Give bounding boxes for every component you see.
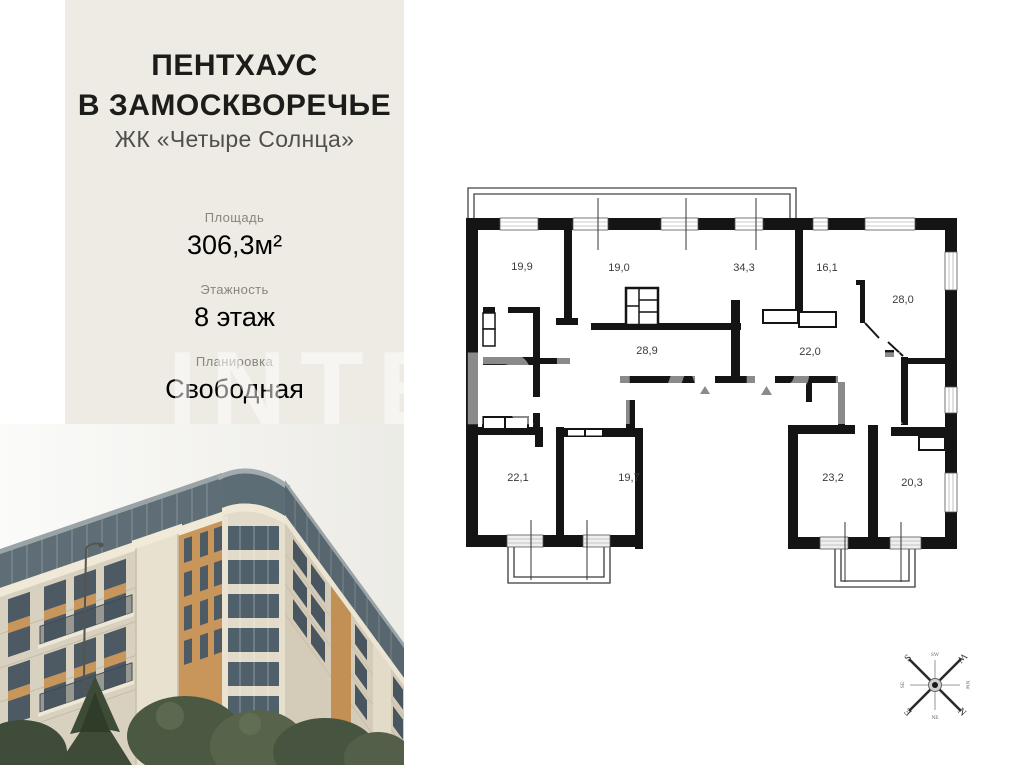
spec-layout-label: Планировка [65,354,404,369]
spec-floor-value: 8 этаж [65,302,404,333]
svg-text:SW: SW [931,652,940,658]
spec-layout: Планировка Свободная [65,354,404,405]
title-line1: ПЕНТХАУС [151,49,317,82]
window-ticks [531,198,901,582]
room-area-label: 23,2 [822,472,843,484]
info-panel: ПЕНТХАУС В ЗАМОСКВОРЕЧЬЕ ЖК «Четыре Солн… [65,0,404,424]
building-photo [0,424,404,765]
room-area-label: 22,0 [799,346,820,358]
spec-area: Площадь 306,3м² [65,210,404,261]
terrace-parapet [468,188,796,218]
complex-name: ЖК «Четыре Солнца» [65,126,404,153]
spec-area-value: 306,3м² [65,230,404,261]
title-line2: В ЗАМОСКВОРЕЧЬЕ [78,89,391,122]
door-markers [700,386,772,395]
page-title: ПЕНТХАУС В ЗАМОСКВОРЕЧЬЕ [65,46,404,126]
svg-text:NE: NE [931,715,939,721]
floorplan-walls [466,218,957,549]
room-area-label: 28,0 [892,294,913,306]
spec-floor: Этажность 8 этаж [65,282,404,333]
compass-icon: S W E N SW NE SE NW [895,645,975,725]
spec-area-label: Площадь [65,210,404,225]
room-area-label: 28,9 [636,345,657,357]
room-area-label: 19,9 [511,261,532,273]
room-area-label: 16,1 [816,262,837,274]
svg-text:NW: NW [964,680,970,690]
room-area-label: 19,7 [618,472,639,484]
svg-text:SE: SE [900,681,906,688]
room-area-label: 19,0 [608,262,629,274]
room-area-label: 34,3 [733,262,754,274]
floorplan [458,180,968,595]
room-area-label: 20,3 [901,477,922,489]
door-leaves [865,323,903,356]
room-area-label: 22,1 [507,472,528,484]
spec-layout-value: Свободная [65,374,404,405]
listing-flyer: ПЕНТХАУС В ЗАМОСКВОРЕЧЬЕ ЖК «Четыре Солн… [0,0,1024,765]
spec-floor-label: Этажность [65,282,404,297]
balconies [508,547,915,587]
